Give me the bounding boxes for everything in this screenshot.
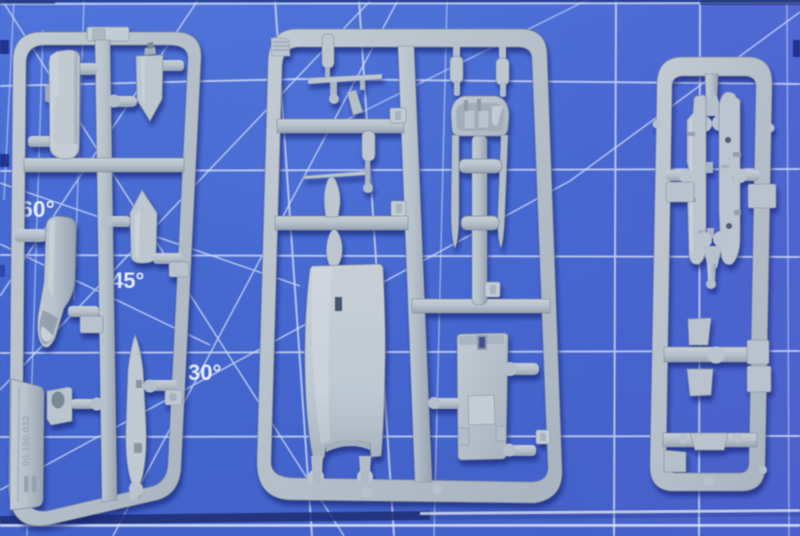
svg-text:00.100.032: 00.100.032 [21,415,32,466]
svg-text:45°: 45° [111,268,144,293]
svg-text:30°: 30° [188,360,221,385]
